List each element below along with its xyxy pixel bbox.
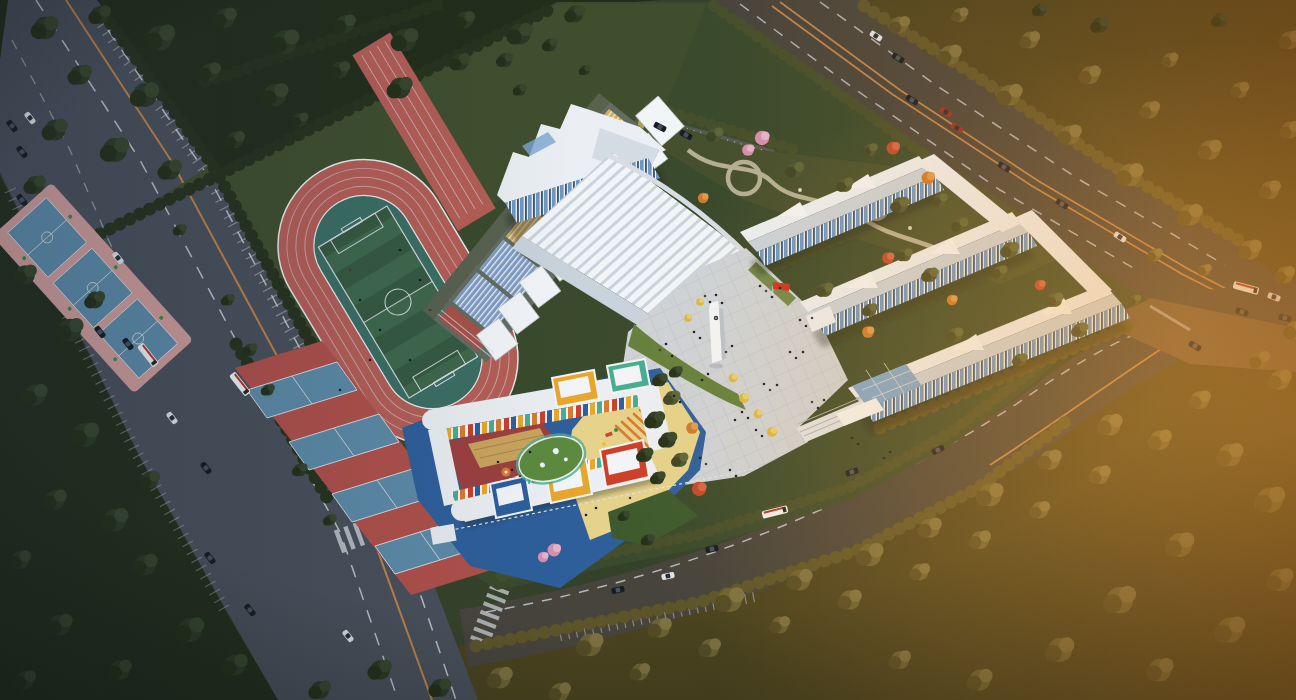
campus-aerial-rendering: [0, 0, 1296, 700]
scene-canvas: [0, 0, 1296, 700]
vignette: [0, 0, 1296, 700]
